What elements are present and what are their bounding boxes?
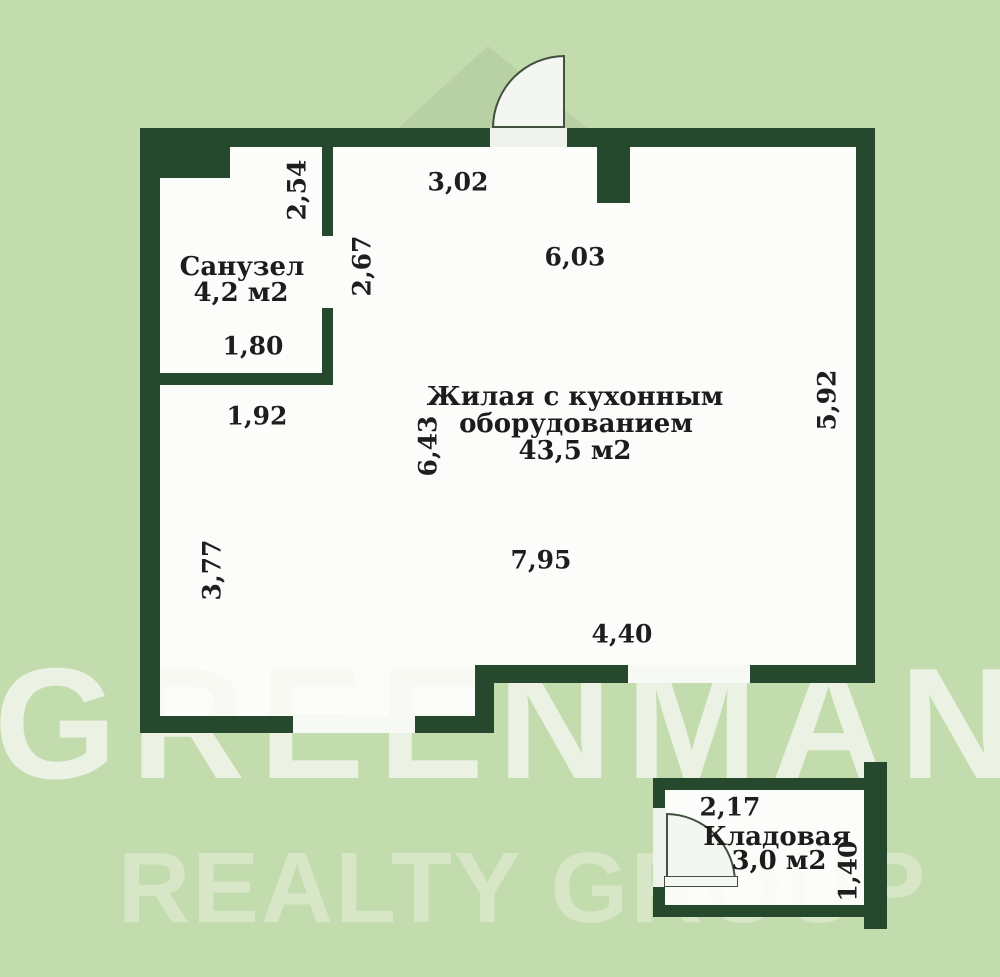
wall-storage-right-bar — [864, 762, 887, 929]
window-left — [293, 716, 415, 733]
wall-left — [140, 128, 160, 733]
storage-door-leaf — [664, 876, 738, 887]
room-area-living: 43,5 м2 — [518, 436, 631, 466]
wall-right — [856, 128, 875, 683]
wall-top-stub — [597, 147, 630, 203]
dim-storage-width: 2,17 — [700, 793, 761, 822]
dim-corridor-height: 2,67 — [348, 236, 377, 297]
wall-bathroom-bottom — [158, 373, 333, 385]
dim-left-wall-height: 3,77 — [198, 540, 227, 601]
wall-storage-bottom — [653, 905, 864, 917]
wall-bathroom-stub-upper — [322, 147, 333, 236]
wall-storage-top — [653, 778, 864, 790]
wall-corner-notch — [140, 128, 230, 178]
dim-storage-height: 1,40 — [834, 841, 863, 902]
dim-below-bathroom-width: 1,92 — [227, 402, 288, 431]
dim-living-height-left: 6,43 — [414, 416, 443, 477]
room-area-storage: 3,0 м2 — [732, 846, 827, 876]
room-label-living-line2: оборудованием — [459, 409, 693, 439]
dim-living-width: 7,95 — [511, 546, 572, 575]
window-right — [628, 665, 750, 683]
dim-living-height-right: 5,92 — [813, 370, 842, 431]
dim-bathroom-width: 1,80 — [223, 332, 284, 361]
dim-living-bottom-width: 4,40 — [592, 620, 653, 649]
dim-bathroom-entry-height: 2,54 — [283, 160, 312, 221]
room-area-bathroom: 4,2 м2 — [194, 278, 289, 308]
entry-door-jamb — [490, 128, 567, 147]
floor-plan-canvas: GREENMAN REALTY GROUP Санузел 4,2 м2 Жил… — [0, 0, 1000, 977]
dim-entry-top-width: 3,02 — [428, 168, 489, 197]
dim-living-top-width: 6,03 — [545, 243, 606, 272]
room-label-living-line1: Жилая с кухонным — [427, 382, 724, 412]
